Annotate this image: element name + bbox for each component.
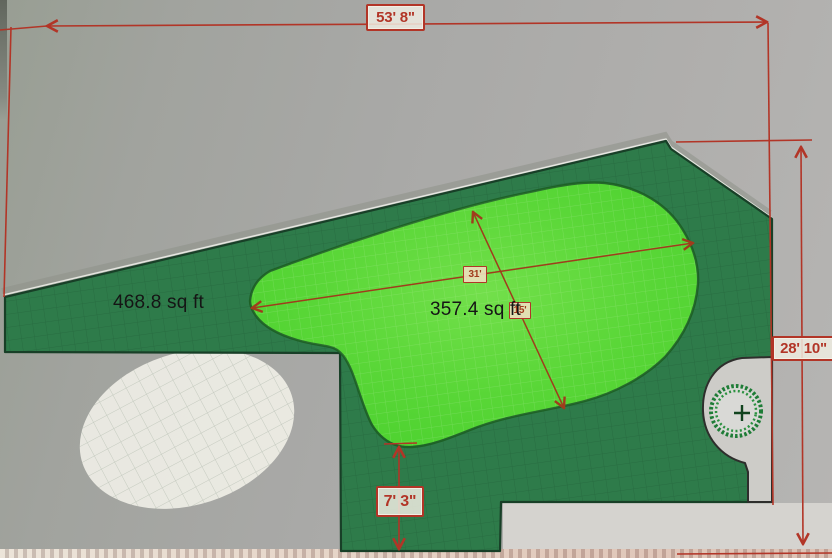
plan-canvas[interactable] xyxy=(0,0,832,558)
dim-label-overall-width[interactable]: 53' 8" xyxy=(366,4,425,31)
sand-area xyxy=(59,323,315,536)
area-label-putting-green: 357.4 sq ft xyxy=(430,299,521,321)
dim-label-green-edge-offset[interactable]: 7' 3" xyxy=(376,486,424,517)
area-label-turf: 468.8 sq ft xyxy=(113,292,204,314)
tree-wreath-icon[interactable] xyxy=(711,386,761,436)
site-plan: 53' 8" 28' 10" 7' 3" 31' 15' 468.8 sq ft… xyxy=(0,0,832,558)
dim-label-overall-height[interactable]: 28' 10" xyxy=(772,336,832,361)
dim-label-green-length[interactable]: 31' xyxy=(463,266,487,283)
walkway-strip xyxy=(503,503,832,549)
